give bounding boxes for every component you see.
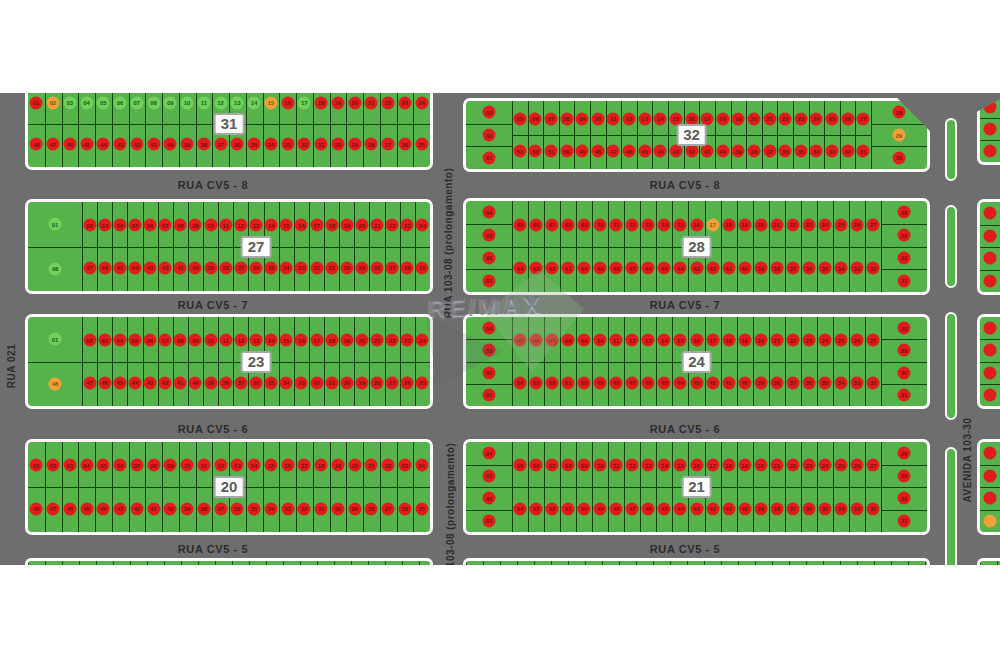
lot-status-dot: 38 [197, 138, 210, 151]
lot-status-dot: 23 [398, 459, 411, 472]
lot-status-dot: 21 [371, 219, 384, 232]
lot-status-dot: 47 [626, 502, 639, 515]
lot-boundary-line [881, 247, 927, 248]
edge-block [977, 93, 1000, 165]
lot-status-dot: 33 [850, 376, 863, 389]
street-label-rua-cv5-6: RUA CV5 - 6 [178, 423, 248, 435]
lot-status-dot: 16 [295, 334, 308, 347]
lot-status-dot: 12 [234, 219, 247, 232]
lot-status-dot: 03 [63, 459, 76, 472]
block-24: 0403020128293031050607080910111213141516… [463, 314, 930, 409]
lot-boundary-line [313, 93, 314, 167]
lot-status-dot: 14 [658, 218, 671, 231]
lot-status-dot: 35 [248, 138, 261, 151]
lot-status-dot: 24 [416, 334, 429, 347]
lot-status-dot: 45 [113, 261, 126, 274]
lot-status-dot: 30 [331, 502, 344, 515]
lot-status-dot: 23 [794, 112, 807, 125]
lot-status-dot: 46 [98, 261, 111, 274]
lot-status-dot: 13 [642, 334, 655, 347]
lot-status-dot: 45 [638, 145, 651, 158]
lot-status-dot: 22 [386, 219, 399, 232]
lot-status-dot: 13 [250, 219, 263, 232]
lot-status-dot [984, 514, 997, 527]
lot-status-dot: 21 [365, 96, 378, 109]
lot-boundary-line [380, 93, 381, 167]
lot-status-dot: 47 [47, 502, 60, 515]
lot-status-dot: 19 [738, 459, 751, 472]
lot-status-dot: 11 [219, 219, 232, 232]
lot-status-dot: 31 [857, 145, 870, 158]
lot-status-dot: 31 [898, 274, 911, 287]
lot-status-dot: 36 [779, 145, 792, 158]
lot-status-dot: 21 [365, 459, 378, 472]
lot-status-dot: 17 [706, 218, 719, 231]
lot-boundary-line [881, 362, 927, 363]
lot-status-dot [984, 322, 997, 335]
lot-status-dot: 41 [147, 138, 160, 151]
lot-status-dot: 39 [754, 376, 767, 389]
lot-status-dot: 34 [264, 138, 277, 151]
lot-status-dot: 09 [576, 112, 589, 125]
lot-status-dot: 39 [754, 502, 767, 515]
lot-status-dot: 04 [483, 322, 496, 335]
lot-boundary-line [881, 465, 927, 466]
lot-status-dot: 16 [295, 219, 308, 232]
lot-status-dot: 04 [483, 447, 496, 460]
lot-status-dot: 02 [483, 251, 496, 264]
lot-status-dot: 44 [97, 502, 110, 515]
lot-boundary-line [62, 93, 63, 167]
lot-boundary-line [246, 93, 247, 167]
lot-status-dot: 46 [63, 502, 76, 515]
lot-status-dot: 16 [690, 218, 703, 231]
lot-status-dot: 29 [898, 344, 911, 357]
avenue-median [945, 118, 957, 181]
lot-status-dot: 15 [674, 218, 687, 231]
lot-status-dot: 23 [401, 219, 414, 232]
lot-status-dot: 44 [674, 262, 687, 275]
lot-status-dot: 32 [841, 145, 854, 158]
lot-boundary-line [466, 269, 512, 270]
lot-status-dot: 42 [130, 138, 143, 151]
lot-status-dot: 27 [382, 138, 395, 151]
lot-status-dot: 28 [365, 502, 378, 515]
lot-status-dot: 28 [371, 376, 384, 389]
lot-status-dot: 30 [898, 492, 911, 505]
lot-status-dot: 34 [280, 376, 293, 389]
lot-status-dot: 13 [231, 96, 244, 109]
lot-boundary-line [980, 270, 1000, 271]
lot-boundary-line [28, 247, 430, 248]
lot-status-dot: 47 [626, 262, 639, 275]
lot-boundary-line [45, 93, 46, 167]
lot-status-dot: 37 [214, 138, 227, 151]
lot-status-dot: 38 [770, 262, 783, 275]
lot-status-dot: 46 [642, 502, 655, 515]
lot-status-dot: 30 [331, 138, 344, 151]
lot-status-dot: 37 [214, 502, 227, 515]
lot-status-dot [984, 274, 997, 287]
lot-status-dot: 08 [147, 459, 160, 472]
street-label-rua-cv5-8: RUA CV5 - 8 [178, 179, 248, 191]
lot-status-dot: 43 [114, 138, 127, 151]
lot-status-dot: 01 [49, 218, 62, 231]
lot-status-dot: 27 [386, 261, 399, 274]
lot-status-dot: 38 [747, 145, 760, 158]
lot-status-dot: 35 [818, 502, 831, 515]
lot-status-dot: 41 [701, 145, 714, 158]
street-label-avenida-103-30: AVENIDA 103-30 [962, 418, 973, 503]
lot-status-dot: 28 [893, 106, 906, 119]
lot-boundary-line [179, 93, 180, 167]
edge-block [977, 314, 1000, 409]
lot-boundary-line [466, 510, 512, 511]
lot-status-dot: 01 [483, 274, 496, 287]
lot-status-dot: 31 [325, 261, 338, 274]
lot-status-dot: 44 [674, 376, 687, 389]
block-number-label: 21 [681, 476, 712, 498]
lot-status-dot: 36 [250, 261, 263, 274]
lot-status-dot: 19 [738, 334, 751, 347]
lot-status-dot: 46 [623, 145, 636, 158]
street-label-rua-cv5-8: RUA CV5 - 8 [650, 179, 720, 191]
lot-status-dot: 42 [706, 262, 719, 275]
lot-status-dot: 54 [514, 262, 527, 275]
lot-status-dot: 40 [164, 138, 177, 151]
lot-status-dot [984, 123, 997, 136]
lot-status-dot: 14 [658, 459, 671, 472]
lot-boundary-line [980, 384, 1000, 385]
lot-status-dot [984, 344, 997, 357]
lot-boundary-line [466, 146, 512, 147]
lot-status-dot: 03 [98, 334, 111, 347]
lot-status-dot: 03 [483, 469, 496, 482]
lot-status-dot: 06 [114, 96, 127, 109]
edge-block [977, 439, 1000, 535]
lot-status-dot: 23 [401, 334, 414, 347]
lot-status-dot: 13 [642, 218, 655, 231]
lot-status-dot: 41 [147, 502, 160, 515]
lot-boundary-line [980, 510, 1000, 511]
lot-status-dot: 37 [234, 261, 247, 274]
lot-status-dot: 14 [248, 96, 261, 109]
lot-status-dot: 06 [530, 334, 543, 347]
lot-status-dot: 06 [114, 459, 127, 472]
lot-boundary-line [112, 93, 113, 167]
lot-status-dot: 17 [706, 334, 719, 347]
lot-status-dot: 04 [80, 96, 93, 109]
lot-status-dot: 07 [545, 112, 558, 125]
lot-status-dot: 31 [315, 502, 328, 515]
lot-status-dot: 36 [250, 376, 263, 389]
lot-status-dot: 05 [97, 96, 110, 109]
lot-status-dot: 06 [144, 334, 157, 347]
lot-status-dot: 01 [483, 514, 496, 527]
lot-status-dot: 30 [893, 151, 906, 164]
lot-status-dot: 10 [594, 218, 607, 231]
lot-status-dot [984, 101, 997, 114]
lot-boundary-line [881, 384, 927, 385]
lot-status-dot: 01 [30, 459, 43, 472]
lot-status-dot: 51 [562, 376, 575, 389]
avenue-median [945, 447, 957, 565]
lot-status-dot: 10 [181, 459, 194, 472]
block-23: 0148020304050607080910111213141516171819… [25, 314, 433, 409]
lot-status-dot: 38 [770, 502, 783, 515]
lot-status-dot: 44 [654, 145, 667, 158]
lot-status-dot: 28 [898, 447, 911, 460]
lot-status-dot: 10 [181, 96, 194, 109]
lot-status-dot: 07 [159, 334, 172, 347]
lot-status-dot: 14 [248, 459, 261, 472]
lot-status-dot: 51 [562, 262, 575, 275]
lot-status-dot: 47 [83, 261, 96, 274]
lot-status-dot: 14 [265, 219, 278, 232]
lot-status-dot: 43 [114, 502, 127, 515]
street-label-rua-cv5-7: RUA CV5 - 7 [178, 299, 248, 311]
lot-status-dot: 03 [483, 344, 496, 357]
lot-boundary-line [279, 93, 280, 167]
lot-status-dot: 19 [738, 218, 751, 231]
lot-status-dot: 38 [197, 502, 210, 515]
lot-status-dot: 08 [562, 334, 575, 347]
lot-status-dot: 36 [802, 376, 815, 389]
lot-status-dot: 43 [144, 261, 157, 274]
lot-boundary-line [871, 146, 927, 147]
lot-status-dot: 25 [415, 502, 428, 515]
lot-boundary-line [145, 93, 146, 167]
lot-status-dot: 35 [794, 145, 807, 158]
lot-status-dot: 34 [810, 145, 823, 158]
lot-status-dot: 40 [164, 502, 177, 515]
lot-status-dot: 15 [280, 334, 293, 347]
lot-status-dot: 03 [63, 96, 76, 109]
lot-status-dot: 11 [610, 218, 623, 231]
lot-status-dot: 53 [530, 262, 543, 275]
lot-boundary-line [78, 93, 79, 167]
lot-boundary-line [466, 487, 512, 488]
lot-status-dot: 40 [716, 145, 729, 158]
lot-status-dot: 17 [706, 459, 719, 472]
lot-status-dot: 35 [265, 261, 278, 274]
lot-status-dot: 17 [298, 96, 311, 109]
lot-status-dot: 48 [30, 138, 43, 151]
lot-status-dot: 09 [189, 219, 202, 232]
lot-status-dot: 39 [204, 261, 217, 274]
lot-status-dot: 32 [866, 262, 879, 275]
lot-status-dot: 19 [732, 112, 745, 125]
lot-status-dot: 31 [898, 388, 911, 401]
lot-status-dot: 24 [818, 459, 831, 472]
lot-status-dot: 38 [219, 261, 232, 274]
lot-status-dot: 40 [189, 376, 202, 389]
lot-status-dot: 01 [483, 388, 496, 401]
lot-status-dot: 24 [415, 459, 428, 472]
lot-status-dot [984, 229, 997, 242]
lot-status-dot: 22 [786, 334, 799, 347]
lot-status-dot: 53 [530, 376, 543, 389]
lot-status-dot: 40 [738, 376, 751, 389]
lot-status-dot [984, 388, 997, 401]
lot-status-dot: 18 [315, 96, 328, 109]
lot-status-dot: 24 [416, 219, 429, 232]
lot-boundary-line [980, 225, 1000, 226]
lot-status-dot: 05 [514, 334, 527, 347]
lot-status-dot: 07 [159, 219, 172, 232]
lot-status-dot: 05 [514, 218, 527, 231]
lot-boundary-line [466, 362, 512, 363]
lot-status-dot: 09 [578, 459, 591, 472]
lot-status-dot: 12 [626, 334, 639, 347]
lot-status-dot: 11 [219, 334, 232, 347]
lot-status-dot: 39 [181, 138, 194, 151]
lot-status-dot: 02 [483, 366, 496, 379]
lot-boundary-line [346, 93, 347, 167]
lot-status-dot: 47 [83, 376, 96, 389]
lot-boundary-line [196, 93, 197, 167]
lot-status-dot: 33 [281, 138, 294, 151]
block-number-label: 28 [681, 236, 712, 258]
lot-status-dot: 26 [398, 138, 411, 151]
lot-boundary-line [28, 362, 82, 363]
lot-status-dot: 30 [898, 251, 911, 264]
lot-status-dot: 15 [264, 459, 277, 472]
lot-status-dot: 46 [642, 262, 655, 275]
lot-status-dot: 54 [514, 502, 527, 515]
lot-status-dot: 11 [607, 112, 620, 125]
lot-boundary-line [466, 124, 512, 125]
lot-status-dot: 18 [722, 459, 735, 472]
lot-status-dot: 07 [130, 459, 143, 472]
edge-block [977, 199, 1000, 295]
lot-boundary-line [980, 247, 1000, 248]
lot-status-dot: 48 [30, 502, 43, 515]
lot-status-dot: 11 [197, 459, 210, 472]
lot-status-dot: 39 [181, 502, 194, 515]
lot-status-dot: 42 [159, 376, 172, 389]
lot-status-dot: 32 [298, 138, 311, 151]
block-27: 0148020304050607080910111213141516171819… [25, 199, 433, 294]
lot-boundary-line [980, 487, 1000, 488]
lot-status-dot: 48 [610, 376, 623, 389]
lot-status-dot: 15 [264, 96, 277, 109]
lot-status-dot: 10 [204, 334, 217, 347]
lot-status-dot: 37 [234, 376, 247, 389]
lot-status-dot: 37 [786, 262, 799, 275]
lot-status-dot: 24 [818, 218, 831, 231]
lot-boundary-line [363, 93, 364, 167]
lot-status-dot: 38 [219, 376, 232, 389]
lot-status-dot: 38 [770, 376, 783, 389]
lot-status-dot: 02 [83, 219, 96, 232]
lot-status-dot: 36 [802, 262, 815, 275]
lot-status-dot [984, 207, 997, 220]
lot-status-dot: 20 [754, 459, 767, 472]
lot-status-dot: 34 [834, 376, 847, 389]
lot-status-dot: 02 [83, 334, 96, 347]
lot-status-dot: 41 [174, 376, 187, 389]
lot-status-dot: 39 [204, 376, 217, 389]
lot-status-dot: 45 [658, 262, 671, 275]
lot-status-dot: 47 [607, 145, 620, 158]
lot-status-dot: 41 [722, 376, 735, 389]
lot-status-dot: 29 [898, 229, 911, 242]
lot-boundary-line [466, 224, 512, 225]
lot-status-dot: 12 [234, 334, 247, 347]
lot-status-dot: 46 [63, 138, 76, 151]
lot-status-dot: 48 [610, 262, 623, 275]
block-32: 0302012829300506070809101112131415161718… [463, 98, 930, 172]
lot-status-dot: 17 [298, 459, 311, 472]
street-label-rua-021: RUA 021 [6, 344, 17, 388]
lot-status-dot: 45 [113, 376, 126, 389]
lot-boundary-line [980, 465, 1000, 466]
lot-status-dot: 25 [834, 218, 847, 231]
lot-status-dot: 28 [365, 138, 378, 151]
lot-status-dot: 41 [722, 262, 735, 275]
lot-status-dot [984, 492, 997, 505]
lot-status-dot: 08 [562, 218, 575, 231]
lot-status-dot: 37 [786, 502, 799, 515]
lot-status-dot: 05 [128, 219, 141, 232]
lot-boundary-line [28, 247, 82, 248]
lot-status-dot: 31 [898, 514, 911, 527]
lot-status-dot: 13 [231, 459, 244, 472]
lot-status-dot: 02 [483, 492, 496, 505]
lot-status-dot: 13 [250, 334, 263, 347]
lot-status-dot: 20 [348, 96, 361, 109]
lot-status-dot: 48 [591, 145, 604, 158]
lot-status-dot: 43 [690, 376, 703, 389]
lot-boundary-line [980, 118, 1000, 119]
lot-status-dot: 01 [30, 96, 43, 109]
lot-boundary-line [413, 93, 414, 167]
lot-status-dot: 05 [128, 334, 141, 347]
lot-status-dot: 33 [281, 502, 294, 515]
lot-status-dot: 53 [513, 145, 526, 158]
lot-status-dot: 21 [770, 459, 783, 472]
lot-status-dot: 10 [594, 334, 607, 347]
block-28: 0403020128293031050607080910111213141516… [463, 198, 930, 295]
lot-status-dot: 07 [130, 96, 143, 109]
lot-status-dot: 21 [770, 334, 783, 347]
lot-status-dot: 36 [231, 502, 244, 515]
lot-boundary-line [28, 362, 430, 363]
lot-status-dot: 52 [529, 145, 542, 158]
lot-boundary-line [162, 93, 163, 167]
lot-status-dot: 11 [197, 96, 210, 109]
lot-status-dot: 04 [80, 459, 93, 472]
lot-status-dot: 29 [898, 469, 911, 482]
partial-block-strip [977, 558, 1000, 565]
lot-status-dot: 28 [898, 322, 911, 335]
lot-status-dot: 43 [669, 145, 682, 158]
lot-status-dot: 53 [530, 502, 543, 515]
lot-status-dot: 35 [265, 376, 278, 389]
lot-status-dot: 20 [355, 334, 368, 347]
lot-status-dot: 17 [310, 219, 323, 232]
lot-boundary-line [881, 224, 927, 225]
lot-status-dot: 10 [594, 459, 607, 472]
lot-status-dot: 25 [834, 459, 847, 472]
lot-status-dot: 15 [674, 459, 687, 472]
lot-status-dot: 03 [483, 106, 496, 119]
lot-status-dot: 27 [386, 376, 399, 389]
lot-boundary-line [330, 93, 331, 167]
lot-status-dot: 46 [98, 376, 111, 389]
lot-status-dot: 37 [763, 145, 776, 158]
